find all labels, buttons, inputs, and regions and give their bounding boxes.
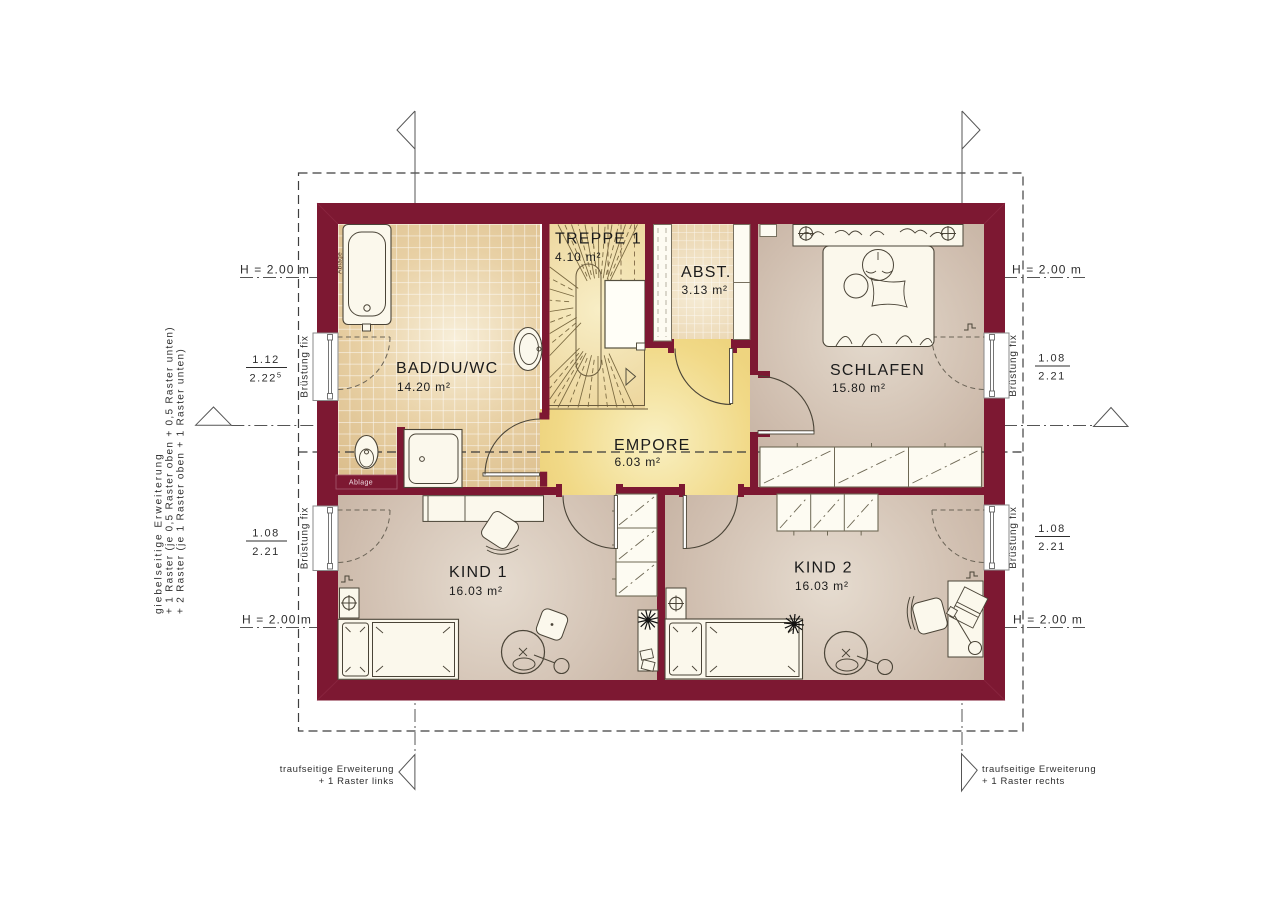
svg-text:3.13 m²: 3.13 m² bbox=[682, 283, 728, 297]
svg-text:+ 1 Raster (je 0,5 Raster oben: + 1 Raster (je 0,5 Raster oben + 0,5 Ras… bbox=[165, 326, 176, 614]
svg-text:2.21: 2.21 bbox=[1038, 371, 1065, 383]
svg-text:KIND 1: KIND 1 bbox=[449, 564, 508, 581]
svg-text:traufseitige Erweiterung: traufseitige Erweiterung bbox=[982, 764, 1096, 775]
svg-text:BAD/DU/WC: BAD/DU/WC bbox=[396, 360, 498, 377]
svg-text:1.12: 1.12 bbox=[252, 354, 279, 366]
svg-text:KIND 2: KIND 2 bbox=[794, 560, 853, 577]
svg-text:Brüstung fix: Brüstung fix bbox=[300, 335, 311, 397]
svg-text:2.21: 2.21 bbox=[1038, 541, 1065, 553]
svg-text:Brüstung fix: Brüstung fix bbox=[1008, 334, 1019, 396]
svg-text:TREPPE 1: TREPPE 1 bbox=[555, 231, 642, 248]
svg-text:EMPORE: EMPORE bbox=[614, 437, 691, 454]
svg-text:H = 2.00 m: H = 2.00 m bbox=[240, 263, 310, 277]
svg-text:1.08: 1.08 bbox=[1038, 353, 1065, 365]
svg-text:1.08: 1.08 bbox=[252, 528, 279, 540]
svg-text:+ 1 Raster rechts: + 1 Raster rechts bbox=[982, 776, 1065, 787]
svg-text:ABST.: ABST. bbox=[681, 264, 731, 281]
svg-text:6.03 m²: 6.03 m² bbox=[615, 455, 661, 469]
svg-text:2.21: 2.21 bbox=[252, 546, 279, 558]
svg-text:SCHLAFEN: SCHLAFEN bbox=[830, 362, 925, 379]
svg-text:+ 1 Raster links: + 1 Raster links bbox=[319, 776, 394, 787]
svg-text:Ablage: Ablage bbox=[349, 480, 373, 487]
svg-text:Brüstung fix: Brüstung fix bbox=[1008, 506, 1019, 568]
svg-text:16.03 m²: 16.03 m² bbox=[449, 584, 503, 598]
svg-text:1.08: 1.08 bbox=[1038, 523, 1065, 535]
svg-text:H = 2.00 m: H = 2.00 m bbox=[1013, 613, 1083, 627]
svg-text:Brüstung fix: Brüstung fix bbox=[300, 507, 311, 569]
svg-text:H = 2.00 m: H = 2.00 m bbox=[1012, 263, 1082, 277]
svg-text:4.10 m²: 4.10 m² bbox=[555, 250, 601, 264]
svg-text:16.03 m²: 16.03 m² bbox=[795, 579, 849, 593]
svg-text:giebelseitige Erweiterung: giebelseitige Erweiterung bbox=[154, 452, 165, 614]
svg-text:Ablage: Ablage bbox=[337, 252, 344, 274]
svg-text:15.80 m²: 15.80 m² bbox=[832, 381, 886, 395]
svg-text:14.20 m²: 14.20 m² bbox=[397, 380, 451, 394]
svg-text:+ 2 Raster (je 1 Raster oben +: + 2 Raster (je 1 Raster oben + 1 Raster … bbox=[176, 348, 187, 614]
svg-text:traufseitige Erweiterung: traufseitige Erweiterung bbox=[280, 764, 394, 775]
svg-text:H = 2.00 m: H = 2.00 m bbox=[242, 613, 312, 627]
